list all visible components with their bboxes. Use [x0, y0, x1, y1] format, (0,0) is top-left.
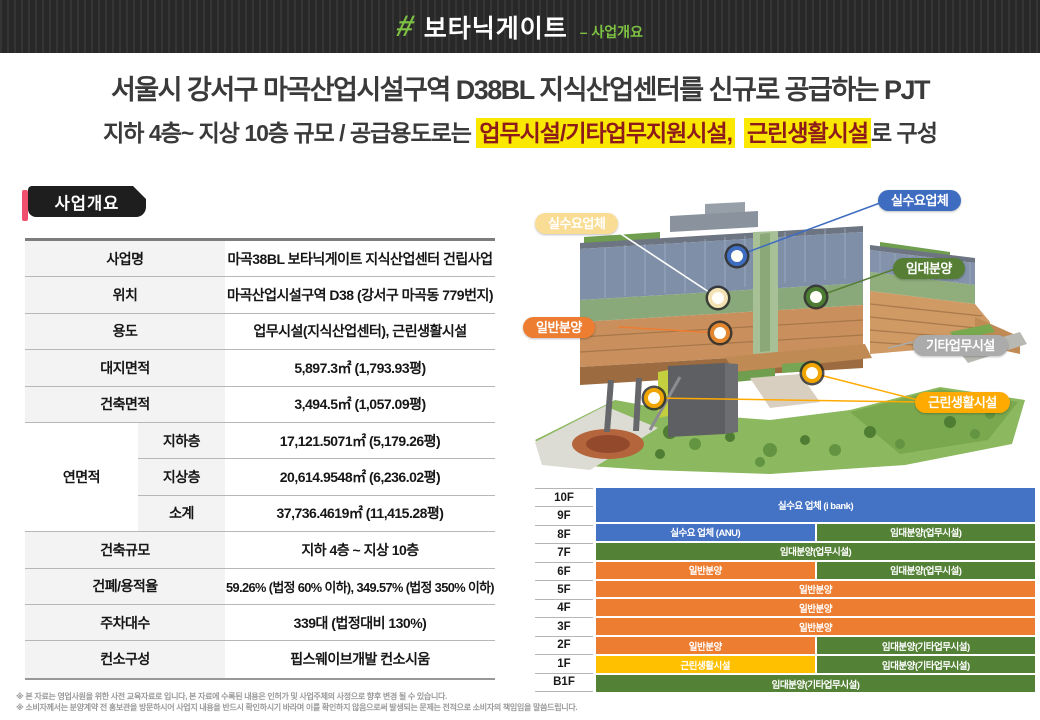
floor-segment: 일반분양 — [596, 618, 1035, 635]
row-label: 주차대수 — [25, 605, 225, 641]
floor-segment: 일반분양 — [596, 637, 815, 654]
floor-bar-row: 근린생활시설 임대분양(기타업무시설) — [596, 656, 1035, 673]
brand-hash-icon: # — [393, 10, 418, 44]
row-label: 사업명 — [25, 241, 225, 277]
floor-segment: 일반분양 — [596, 599, 1035, 616]
row-sublabel: 지상층 — [138, 459, 225, 495]
row-value: 마곡38BL 보타닉게이트 지식산업센터 건립사업 — [225, 241, 495, 277]
floor-label: 6F — [535, 563, 593, 581]
row-value: 59.26% (법정 60% 이하), 349.57% (법정 350% 이하) — [225, 569, 495, 605]
floor-segment: 임대분양(기타업무시설) — [817, 637, 1036, 654]
floor-bar-row: 일반분양 — [596, 581, 1035, 598]
floor-bar-row: 일반분양 임대분양(업무시설) — [596, 562, 1035, 579]
row-value: 37,736.4619㎡ (11,415.28평) — [225, 496, 495, 532]
row-sublabel: 소계 — [138, 496, 225, 532]
row-value: 339대 (법정대비 130%) — [225, 605, 495, 641]
callout-other-biz: 기타업무시설 — [913, 335, 1008, 356]
floor-label: 8F — [535, 526, 593, 544]
row-label-area-group: 연면적 — [25, 423, 138, 532]
row-value: 17,121.5071㎡ (5,179.26평) — [225, 423, 495, 459]
floor-bar-row: 실수요 업체 (ANU) 임대분양(업무시설) — [596, 524, 1035, 541]
building-zone: 실수요업체 실수요업체 임대분양 일반분양 기타업무시설 근린생활시설 — [520, 182, 1040, 482]
subtitle-highlight-1: 업무시설/기타업무지원시설, — [476, 118, 735, 148]
floor-segment: 일반분양 — [596, 562, 815, 579]
floor-label: 10F — [535, 488, 593, 507]
row-label: 건축면적 — [25, 387, 225, 423]
floor-label: 3F — [535, 618, 593, 636]
row-value: 업무시설(지식산업센터), 근린생활시설 — [225, 314, 495, 350]
row-value: 핍스웨이브개발 컨소시움 — [225, 641, 495, 677]
subtitle-text-1: 지하 4층~ 지상 10층 규모 / 공급용도로는 — [103, 120, 476, 146]
floor-label: 5F — [535, 581, 593, 599]
row-value: 5,897.3㎡ (1,793.93평) — [225, 350, 495, 386]
header-section-label: – 사업개요 — [580, 22, 643, 42]
callout-neighborhood: 근린생활시설 — [915, 392, 1010, 413]
floor-segment: 임대분양(업무시설) — [817, 524, 1036, 541]
floor-label: 2F — [535, 637, 593, 655]
floor-label: B1F — [535, 674, 593, 692]
row-sublabel: 지하층 — [138, 423, 225, 459]
callout-general: 일반분양 — [523, 317, 595, 338]
overview-tab: 사업개요 — [28, 186, 146, 217]
floor-chart-bars: 실수요 업체 (i bank) 실수요 업체 (ANU) 임대분양(업무시설) … — [596, 488, 1035, 692]
row-label: 건폐/용적율 — [25, 569, 225, 605]
marker-neighborhood-1 — [644, 388, 664, 408]
row-value: 20,614.9548㎡ (6,236.02평) — [225, 459, 495, 495]
row-value: 지하 4층 ~ 지상 10층 — [225, 532, 495, 568]
floor-bar-row: 일반분양 임대분양(기타업무시설) — [596, 637, 1035, 654]
marker-general — [710, 323, 730, 343]
row-value: 3,494.5㎡ (1,057.09평) — [225, 387, 495, 423]
floor-bar-row: 일반분양 — [596, 599, 1035, 616]
row-value: 마곡산업시설구역 D38 (강서구 마곡동 779번지) — [225, 277, 495, 313]
floor-segment: 실수요 업체 (ANU) — [596, 524, 815, 541]
subtitle: 지하 4층~ 지상 10층 규모 / 공급용도로는 업무시설/기타업무지원시설,… — [0, 114, 1040, 148]
floor-bar-row: 임대분양(업무시설) — [596, 543, 1035, 560]
callout-demand-left: 실수요업체 — [535, 213, 618, 234]
floor-chart: 10F 9F 8F 7F 6F 5F 4F 3F 2F 1F B1F 실수요 업… — [535, 488, 1035, 692]
footnote-1: ※ 본 자료는 영업사원을 위한 사전 교육자료로 입니다, 본 자료에 수록된… — [16, 691, 1026, 702]
callout-demand-top: 실수요업체 — [878, 190, 961, 211]
row-label: 컨소구성 — [25, 641, 225, 677]
footnote-2: ※ 소비자께서는 분양계약 전 홍보관을 방문하시어 사업지 내용을 반드시 확… — [16, 702, 1026, 713]
marker-lease — [806, 287, 826, 307]
row-label: 위치 — [25, 277, 225, 313]
floor-bar-row: 임대분양(기타업무시설) — [596, 675, 1035, 692]
brand-title: 보타닉게이트 — [424, 9, 568, 45]
row-label: 용도 — [25, 314, 225, 350]
tab-accent-bar — [22, 190, 28, 221]
floor-segment: 실수요 업체 (i bank) — [596, 488, 1035, 522]
row-label: 대지면적 — [25, 350, 225, 386]
floor-segment: 임대분양(업무시설) — [596, 543, 1035, 560]
floor-label: 1F — [535, 655, 593, 673]
floor-bar-row: 일반분양 — [596, 618, 1035, 635]
floor-label: 7F — [535, 544, 593, 562]
marker-demand-left — [708, 288, 728, 308]
callout-lease: 임대분양 — [893, 258, 965, 279]
footnotes: ※ 본 자료는 영업사원을 위한 사전 교육자료로 입니다, 본 자료에 수록된… — [16, 691, 1026, 713]
floor-label: 4F — [535, 600, 593, 618]
row-label: 건축규모 — [25, 532, 225, 568]
subtitle-text-2: 로 구성 — [871, 120, 937, 146]
floor-label: 9F — [535, 507, 593, 525]
floor-bar-row: 실수요 업체 (i bank) — [596, 488, 1035, 522]
floor-segment: 임대분양(기타업무시설) — [817, 656, 1036, 673]
floor-segment: 임대분양(기타업무시설) — [596, 675, 1035, 692]
header-bar: # 보타닉게이트 – 사업개요 — [0, 0, 1040, 53]
floor-chart-labels: 10F 9F 8F 7F 6F 5F 4F 3F 2F 1F B1F — [535, 488, 593, 692]
main-title: 서울시 강서구 마곡산업시설구역 D38BL 지식산업센터를 신규로 공급하는 … — [0, 68, 1040, 107]
floor-segment: 근린생활시설 — [596, 656, 815, 673]
floor-segment: 일반분양 — [596, 581, 1035, 598]
subtitle-highlight-2: 근린생활시설 — [744, 118, 871, 148]
overview-table: 사업명 마곡38BL 보타닉게이트 지식산업센터 건립사업 위치 마곡산업시설구… — [25, 238, 495, 680]
marker-neighborhood-2 — [802, 363, 822, 383]
floor-segment: 임대분양(업무시설) — [817, 562, 1036, 579]
marker-demand-top — [727, 246, 747, 266]
